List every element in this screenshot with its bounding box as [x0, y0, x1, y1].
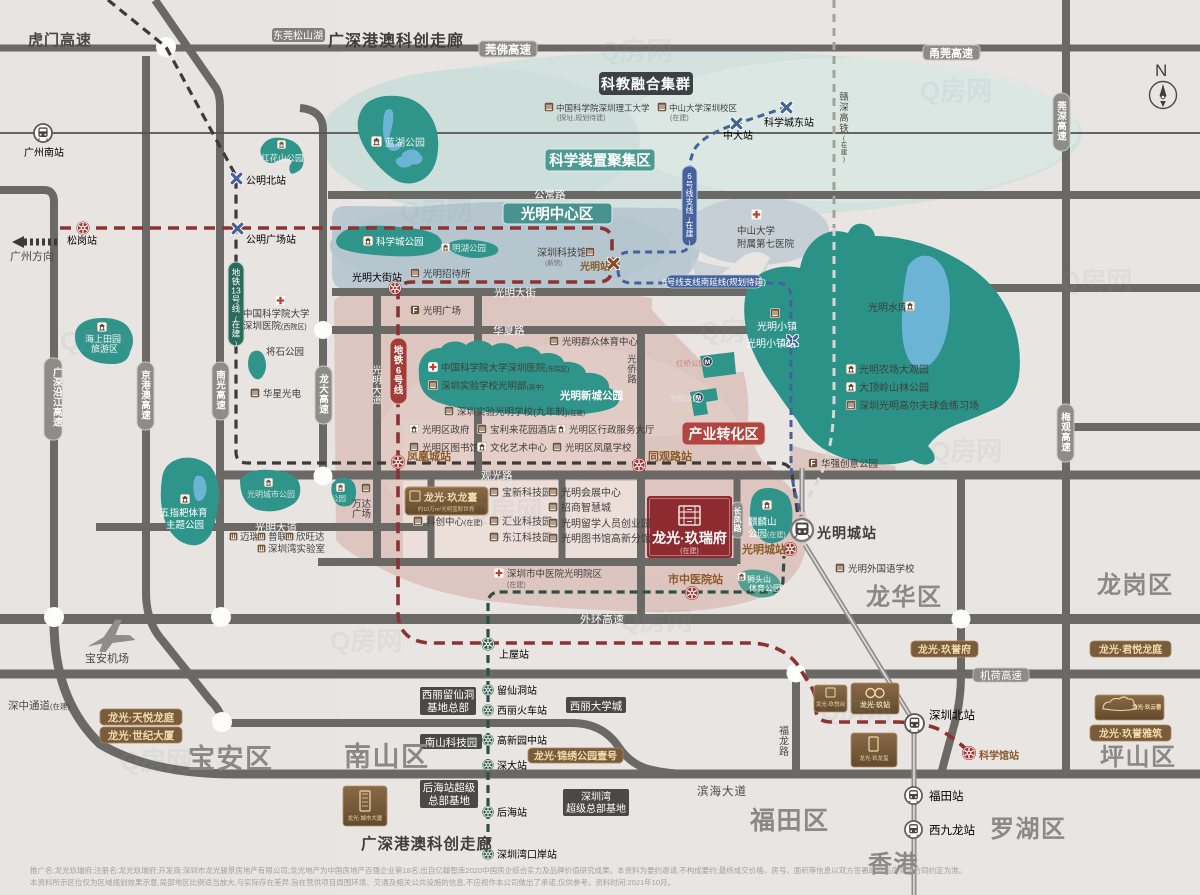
svg-text:南山区: 南山区 [344, 742, 430, 772]
svg-text:Q房网: Q房网 [1060, 266, 1132, 296]
svg-text:光侨路: 光侨路 [627, 354, 637, 386]
svg-text:龙光·天悦龙庭: 龙光·天悦龙庭 [107, 711, 175, 724]
svg-text:华星光电: 华星光电 [263, 388, 302, 400]
svg-text:中山大学深圳校区: 中山大学深圳校区 [669, 103, 738, 113]
svg-text:东江科技园: 东江科技园 [502, 531, 552, 544]
svg-text:科教融合集群: 科教融合集群 [601, 76, 691, 92]
svg-text:东莞松山湖: 东莞松山湖 [273, 29, 323, 42]
svg-text:龙岗区: 龙岗区 [1097, 572, 1174, 599]
svg-text:总部基地: 总部基地 [428, 794, 470, 807]
svg-text:光明中心区: 光明中心区 [520, 205, 594, 223]
svg-text:甬莞高速: 甬莞高速 [929, 46, 973, 60]
svg-text:公园: 公园 [331, 494, 346, 503]
svg-text:宝安区: 宝安区 [188, 743, 274, 774]
svg-text:福田站: 福田站 [929, 789, 964, 803]
svg-text:广深港澳科创走廊: 广深港澳科创走廊 [361, 834, 493, 853]
svg-text:迈瑞: 迈瑞 [240, 531, 260, 543]
svg-text:Q房网: Q房网 [700, 316, 772, 346]
svg-text:西丽大学城: 西丽大学城 [570, 700, 623, 713]
svg-text:科学城东站: 科学城东站 [764, 116, 814, 129]
svg-text:外环高速: 外环高速 [580, 612, 624, 626]
svg-text:产业转化区: 产业转化区 [689, 426, 759, 442]
svg-text:(在建): (在建) [670, 113, 689, 122]
svg-text:深圳湾口岸站: 深圳湾口岸站 [497, 848, 557, 861]
svg-text:光明外国语学校: 光明外国语学校 [848, 563, 915, 575]
svg-text:地铁13号线(在建): 地铁13号线(在建) [231, 268, 241, 348]
svg-text:上屋站: 上屋站 [499, 648, 529, 661]
svg-text:公明北站: 公明北站 [246, 174, 286, 187]
svg-text:松岗站: 松岗站 [67, 234, 97, 247]
svg-text:赣深高铁: 赣深高铁 [839, 91, 849, 135]
svg-text:西九龙站: 西九龙站 [929, 823, 975, 837]
svg-text:Q房网: Q房网 [470, 496, 542, 526]
svg-text:光明大道: 光明大道 [372, 365, 382, 407]
svg-text:麒麟山: 麒麟山 [748, 516, 777, 528]
svg-text:文化艺术中心: 文化艺术中心 [490, 442, 548, 454]
svg-text:Q房网: Q房网 [60, 326, 132, 356]
svg-text:中山大学: 中山大学 [737, 225, 775, 237]
svg-text:竹韵公园: 竹韵公园 [670, 393, 700, 403]
svg-text:广深港澳科创走廊: 广深港澳科创走廊 [328, 31, 464, 50]
svg-text:机荷高速: 机荷高速 [980, 669, 1022, 682]
svg-text:红花山公园: 红花山公园 [261, 153, 304, 163]
svg-text:深大站: 深大站 [497, 759, 527, 772]
svg-text:欣旺达: 欣旺达 [296, 531, 325, 543]
svg-text:N: N [1155, 61, 1167, 80]
svg-text:市中医院站: 市中医院站 [668, 572, 723, 586]
svg-text:光明招待所: 光明招待所 [423, 268, 471, 280]
svg-text:光明会展中心: 光明会展中心 [561, 486, 621, 499]
svg-text:科学装置聚集区: 科学装置聚集区 [549, 152, 651, 170]
svg-text:京港澳高速: 京港澳高速 [141, 370, 151, 422]
svg-text:科学馆站: 科学馆站 [979, 749, 1019, 762]
svg-text:光明图书馆高新分馆: 光明图书馆高新分馆 [561, 532, 651, 545]
svg-text:普联: 普联 [268, 531, 288, 543]
svg-text:滨海大道: 滨海大道 [697, 784, 747, 798]
svg-text:约10万m²光明蓝鲸世界: 约10万m²光明蓝鲸世界 [418, 505, 475, 513]
svg-text:光明农场大观园: 光明农场大观园 [859, 363, 929, 376]
svg-text:光明城市公园: 光明城市公园 [247, 489, 295, 499]
svg-text:华强创意公园: 华强创意公园 [821, 458, 878, 470]
svg-text:光明城站: 光明城站 [816, 525, 877, 541]
svg-text:龙华区: 龙华区 [866, 583, 943, 611]
svg-text:附属第七医院: 附属第七医院 [737, 238, 795, 250]
svg-text:广深沿江高速: 广深沿江高速 [53, 367, 63, 429]
svg-text:Q房网: Q房网 [920, 76, 992, 106]
svg-text:深圳湾: 深圳湾 [581, 790, 611, 803]
svg-text:推广名:龙光玖瑞府;注册名:龙光玖瑞府;开发商:深圳市龙光骏: 推广名:龙光玖瑞府;注册名:龙光玖瑞府;开发商:深圳市龙光骏景房地产有限公司;龙… [30, 865, 966, 875]
svg-text:高新园中站: 高新园中站 [497, 734, 547, 747]
svg-text:龙光·城市大厦: 龙光·城市大厦 [348, 814, 383, 822]
svg-text:西丽留仙洞: 西丽留仙洞 [422, 688, 475, 701]
svg-text:龙光·玖瑞府: 龙光·玖瑞府 [651, 530, 727, 546]
svg-text:光明区凤凰学校: 光明区凤凰学校 [565, 442, 632, 454]
svg-text:中大站: 中大站 [723, 129, 753, 142]
svg-text:光明新城公园: 光明新城公园 [559, 389, 623, 402]
svg-text:宝利来花园酒店: 宝利来花园酒店 [490, 424, 557, 436]
svg-text:光明区图书馆: 光明区图书馆 [422, 442, 479, 454]
svg-text:五指耙体育: 五指耙体育 [160, 507, 208, 519]
svg-text:科学城公园: 科学城公园 [376, 236, 424, 248]
svg-text:光明区政府: 光明区政府 [422, 424, 470, 436]
svg-text:罗湖区: 罗湖区 [990, 816, 1067, 843]
svg-text:(探址,规划待建): (探址,规划待建) [557, 113, 606, 122]
svg-text:宝安机场: 宝安机场 [85, 651, 129, 665]
svg-text:后海站: 后海站 [497, 806, 527, 819]
svg-text:Q房网: Q房网 [600, 36, 672, 66]
svg-text:6号线支线(在建): 6号线支线(在建) [686, 172, 694, 247]
svg-text:Q房网: Q房网 [120, 746, 192, 776]
svg-text:龙光·玖誉府: 龙光·玖誉府 [917, 643, 971, 656]
svg-text:深圳光明高尔夫球会练习场: 深圳光明高尔夫球会练习场 [859, 399, 979, 412]
svg-text:招商智慧城: 招商智慧城 [561, 501, 611, 514]
svg-text:观光路: 观光路 [481, 469, 513, 482]
svg-text:龙光·玖誉雅筑: 龙光·玖誉雅筑 [1098, 727, 1162, 740]
svg-text:公明广场站: 公明广场站 [246, 233, 296, 246]
svg-text:本资料所示区位仅为区域规划效果示意,局部地区比例适当放大,与: 本资料所示区位仅为区域规划效果示意,局部地区比例适当放大,与实际存在差异,旨在营… [30, 877, 675, 887]
svg-text:中国科学院大学: 中国科学院大学 [243, 308, 310, 320]
svg-text:深圳实验光明学校(九年制)(在建): 深圳实验光明学校(九年制)(在建) [457, 406, 585, 418]
svg-text:(在建): (在建) [680, 546, 699, 555]
svg-text:光明区行政服务大厅: 光明区行政服务大厅 [569, 424, 655, 436]
svg-text:公常路: 公常路 [534, 188, 566, 201]
svg-text:光明大街站: 光明大街站 [352, 271, 402, 284]
svg-text:华夏路: 华夏路 [493, 324, 525, 337]
svg-text:明湖公园: 明湖公园 [452, 243, 486, 253]
svg-text:(在建): (在建) [507, 580, 526, 589]
svg-text:龙大高速: 龙大高速 [318, 374, 329, 416]
svg-text:大顶岭山林公园: 大顶岭山林公园 [859, 381, 929, 394]
svg-text:虎门高速: 虎门高速 [28, 31, 92, 49]
svg-text:福田区: 福田区 [749, 807, 830, 835]
svg-text:将石公园: 将石公园 [266, 347, 304, 358]
svg-text:Q房网: Q房网 [330, 626, 402, 656]
svg-text:龙光·玖龙玺: 龙光·玖龙玺 [859, 754, 889, 762]
svg-text:深圳科技馆: 深圳科技馆 [537, 246, 587, 259]
svg-text:龙光·玖云著: 龙光·玖云著 [1131, 703, 1162, 711]
svg-text:(新馆): (新馆) [545, 258, 562, 267]
svg-text:Q房网: Q房网 [930, 436, 1002, 466]
svg-text:主题公园: 主题公园 [166, 519, 204, 531]
svg-text:深圳市中医院光明院区: 深圳市中医院光明院区 [507, 568, 603, 580]
svg-text:蓝湖公园: 蓝湖公园 [385, 137, 425, 149]
svg-text:梅观高速: 梅观高速 [1060, 412, 1071, 454]
svg-text:坪山区: 坪山区 [1100, 744, 1177, 771]
svg-text:光明广场: 光明广场 [423, 305, 461, 317]
svg-text:广州方向: 广州方向 [10, 249, 54, 263]
svg-text:6号线支线南延线(规划待建): 6号线支线南延线(规划待建) [662, 277, 766, 287]
svg-text:光明大街: 光明大街 [494, 286, 536, 299]
svg-text:光明水库: 光明水库 [868, 301, 908, 314]
svg-text:福龙路: 福龙路 [779, 724, 789, 758]
svg-text:后海站超级: 后海站超级 [423, 781, 476, 794]
svg-text:西丽火车站: 西丽火车站 [497, 704, 547, 717]
svg-text:南山科技园: 南山科技园 [425, 736, 478, 749]
svg-text:深圳北站: 深圳北站 [929, 708, 975, 722]
svg-text:南光高速: 南光高速 [215, 370, 226, 412]
svg-text:广场: 广场 [352, 508, 371, 520]
svg-text:Q房网: Q房网 [400, 196, 472, 226]
svg-text:Q房网: Q房网 [820, 696, 892, 726]
svg-text:长凤路: 长凤路 [734, 506, 743, 533]
svg-text:中国科学院深圳理工大学: 中国科学院深圳理工大学 [556, 103, 650, 113]
svg-text:光明城站: 光明城站 [741, 542, 786, 556]
svg-text:龙光·君悦龙庭: 龙光·君悦龙庭 [1098, 643, 1163, 656]
svg-text:Q房网: Q房网 [620, 606, 692, 636]
svg-text:莞深高速: 莞深高速 [1056, 101, 1067, 143]
svg-text:体育公园: 体育公园 [749, 583, 781, 593]
svg-text:同观路站: 同观路站 [648, 449, 692, 463]
svg-text:光明留学人员创业园: 光明留学人员创业园 [561, 517, 651, 530]
svg-text:基地总部: 基地总部 [427, 701, 469, 714]
svg-text:龙光·世纪大厦: 龙光·世纪大厦 [107, 729, 175, 742]
svg-text:龙光·锦绣公园壹号: 龙光·锦绣公园壹号 [533, 750, 617, 763]
svg-text:深圳湾实验室: 深圳湾实验室 [268, 543, 325, 555]
svg-text:红桥公园: 红桥公园 [676, 358, 706, 368]
svg-text:广州南站: 广州南站 [24, 146, 64, 159]
svg-text:超级总部基地: 超级总部基地 [566, 802, 626, 815]
svg-text:留仙洞站: 留仙洞站 [497, 684, 537, 697]
svg-text:狮头山: 狮头山 [747, 574, 771, 584]
svg-text:光明站: 光明站 [579, 260, 610, 273]
svg-text:莞佛高速: 莞佛高速 [484, 43, 531, 57]
svg-text:光明群众体育中心: 光明群众体育中心 [562, 336, 639, 348]
